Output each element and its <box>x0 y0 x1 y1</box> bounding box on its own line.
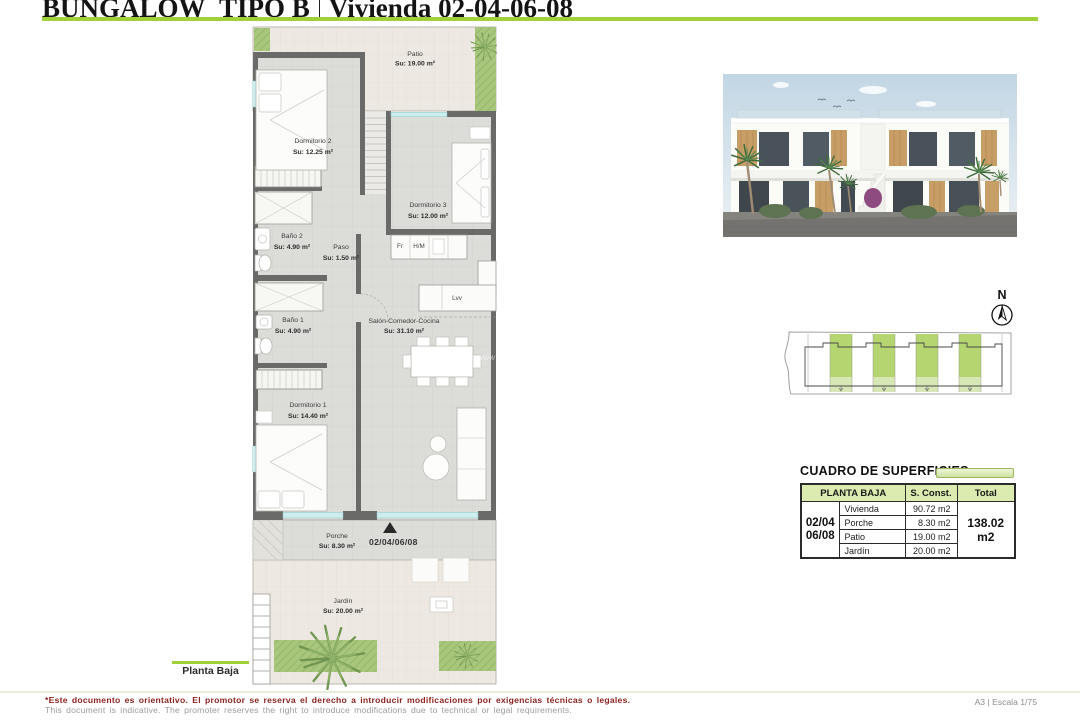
svg-text:Dormitorio 3: Dormitorio 3 <box>409 202 446 209</box>
entrance-units-label: 02/04/06/08 <box>369 537 418 547</box>
total-cell: 138.02 m2 <box>957 502 1015 559</box>
unit-numbers-cell: 02/04 06/08 <box>801 502 839 559</box>
svg-text:Su: 20.00 m²: Su: 20.00 m² <box>323 608 364 615</box>
svg-text:Jardín: Jardín <box>334 598 353 605</box>
svg-text:Dormitorio 2: Dormitorio 2 <box>294 138 331 145</box>
unit-line-1: 02/04 <box>802 517 839 530</box>
svg-text:Porche: Porche <box>326 533 348 540</box>
svg-text:Su: 12.25 m²: Su: 12.25 m² <box>293 149 334 156</box>
row-value: 20.00 m2 <box>905 544 957 559</box>
svg-text:Baño 1: Baño 1 <box>282 317 304 324</box>
building-render-photo <box>723 74 1017 237</box>
site-plan <box>783 329 1013 397</box>
surfaces-header-row: PLANTA BAJA S. Const. Total <box>801 484 1015 502</box>
svg-text:Dormitorio 1: Dormitorio 1 <box>289 402 326 409</box>
row-label: Jardín <box>839 544 905 559</box>
header-accent-rule <box>42 17 1038 21</box>
unit-line-2: 06/08 <box>802 530 839 543</box>
row-value: 19.00 m2 <box>905 530 957 544</box>
floor-plan: Fr H/M Lvv Patio Su: 19.00 m² <box>252 26 497 690</box>
svg-text:Paso: Paso <box>333 244 349 251</box>
header-s-const: S. Const. <box>905 484 957 502</box>
watermark: www <box>478 353 497 362</box>
brochure-sheet: BUNGALOW_TIPO BVivienda 02-04-06-08 <box>0 0 1080 720</box>
disclaimer-es: *Este documento es orientativo. El promo… <box>45 695 630 705</box>
wardrobe-dormitorio1 <box>256 370 322 389</box>
stairwell <box>365 112 386 194</box>
svg-text:Baño 2: Baño 2 <box>281 233 303 240</box>
header-planta-baja: PLANTA BAJA <box>801 484 905 502</box>
row-label: Vivienda <box>839 502 905 516</box>
svg-text:Su: 12.00 m²: Su: 12.00 m² <box>408 213 449 220</box>
svg-text:Patio: Patio <box>407 51 423 58</box>
scale-note: A3 | Escala 1/75 <box>975 697 1037 707</box>
svg-text:Su: 14.40 m²: Su: 14.40 m² <box>288 413 329 420</box>
plan-caption-rule <box>172 661 249 664</box>
row-value: 8.30 m2 <box>905 516 957 530</box>
oven-micro-label: H/M <box>413 243 425 250</box>
svg-text:Su: 31.10 m²: Su: 31.10 m² <box>384 328 425 335</box>
svg-text:Su: 4.90 m²: Su: 4.90 m² <box>274 244 311 251</box>
porch-side-return <box>253 520 283 560</box>
svg-text:Su: 4.90 m²: Su: 4.90 m² <box>275 328 312 335</box>
svg-text:Salón-Comedor-Cocina: Salón-Comedor-Cocina <box>368 318 439 325</box>
svg-text:Su: 19.00 m²: Su: 19.00 m² <box>395 61 436 68</box>
dormitorio1-bed <box>256 411 327 511</box>
row-label: Porche <box>839 516 905 530</box>
surfaces-table: PLANTA BAJA S. Const. Total 02/04 06/08 … <box>800 483 1016 559</box>
disclaimer-en: This document is indicative. The promote… <box>45 705 572 715</box>
fridge-label: Fr <box>397 243 403 250</box>
table-row: 02/04 06/08 Vivienda 90.72 m2 138.02 m2 <box>801 502 1015 516</box>
row-value: 90.72 m2 <box>905 502 957 516</box>
dishwasher-label: Lvv <box>452 295 463 302</box>
row-label: Patio <box>839 530 905 544</box>
patio-planter-left <box>254 28 270 51</box>
north-label: N <box>997 288 1006 302</box>
north-arrow: N <box>987 288 1017 330</box>
garden-table <box>430 597 453 612</box>
header-total: Total <box>957 484 1015 502</box>
svg-text:Su: 8.30 m²: Su: 8.30 m² <box>319 543 356 550</box>
footer-rule <box>0 691 1080 693</box>
plan-caption: Planta Baja <box>157 665 264 677</box>
svg-text:Su: 1.50 m²: Su: 1.50 m² <box>323 255 360 262</box>
surfaces-heading-bar <box>936 468 1014 478</box>
bougainvillea <box>864 188 882 208</box>
